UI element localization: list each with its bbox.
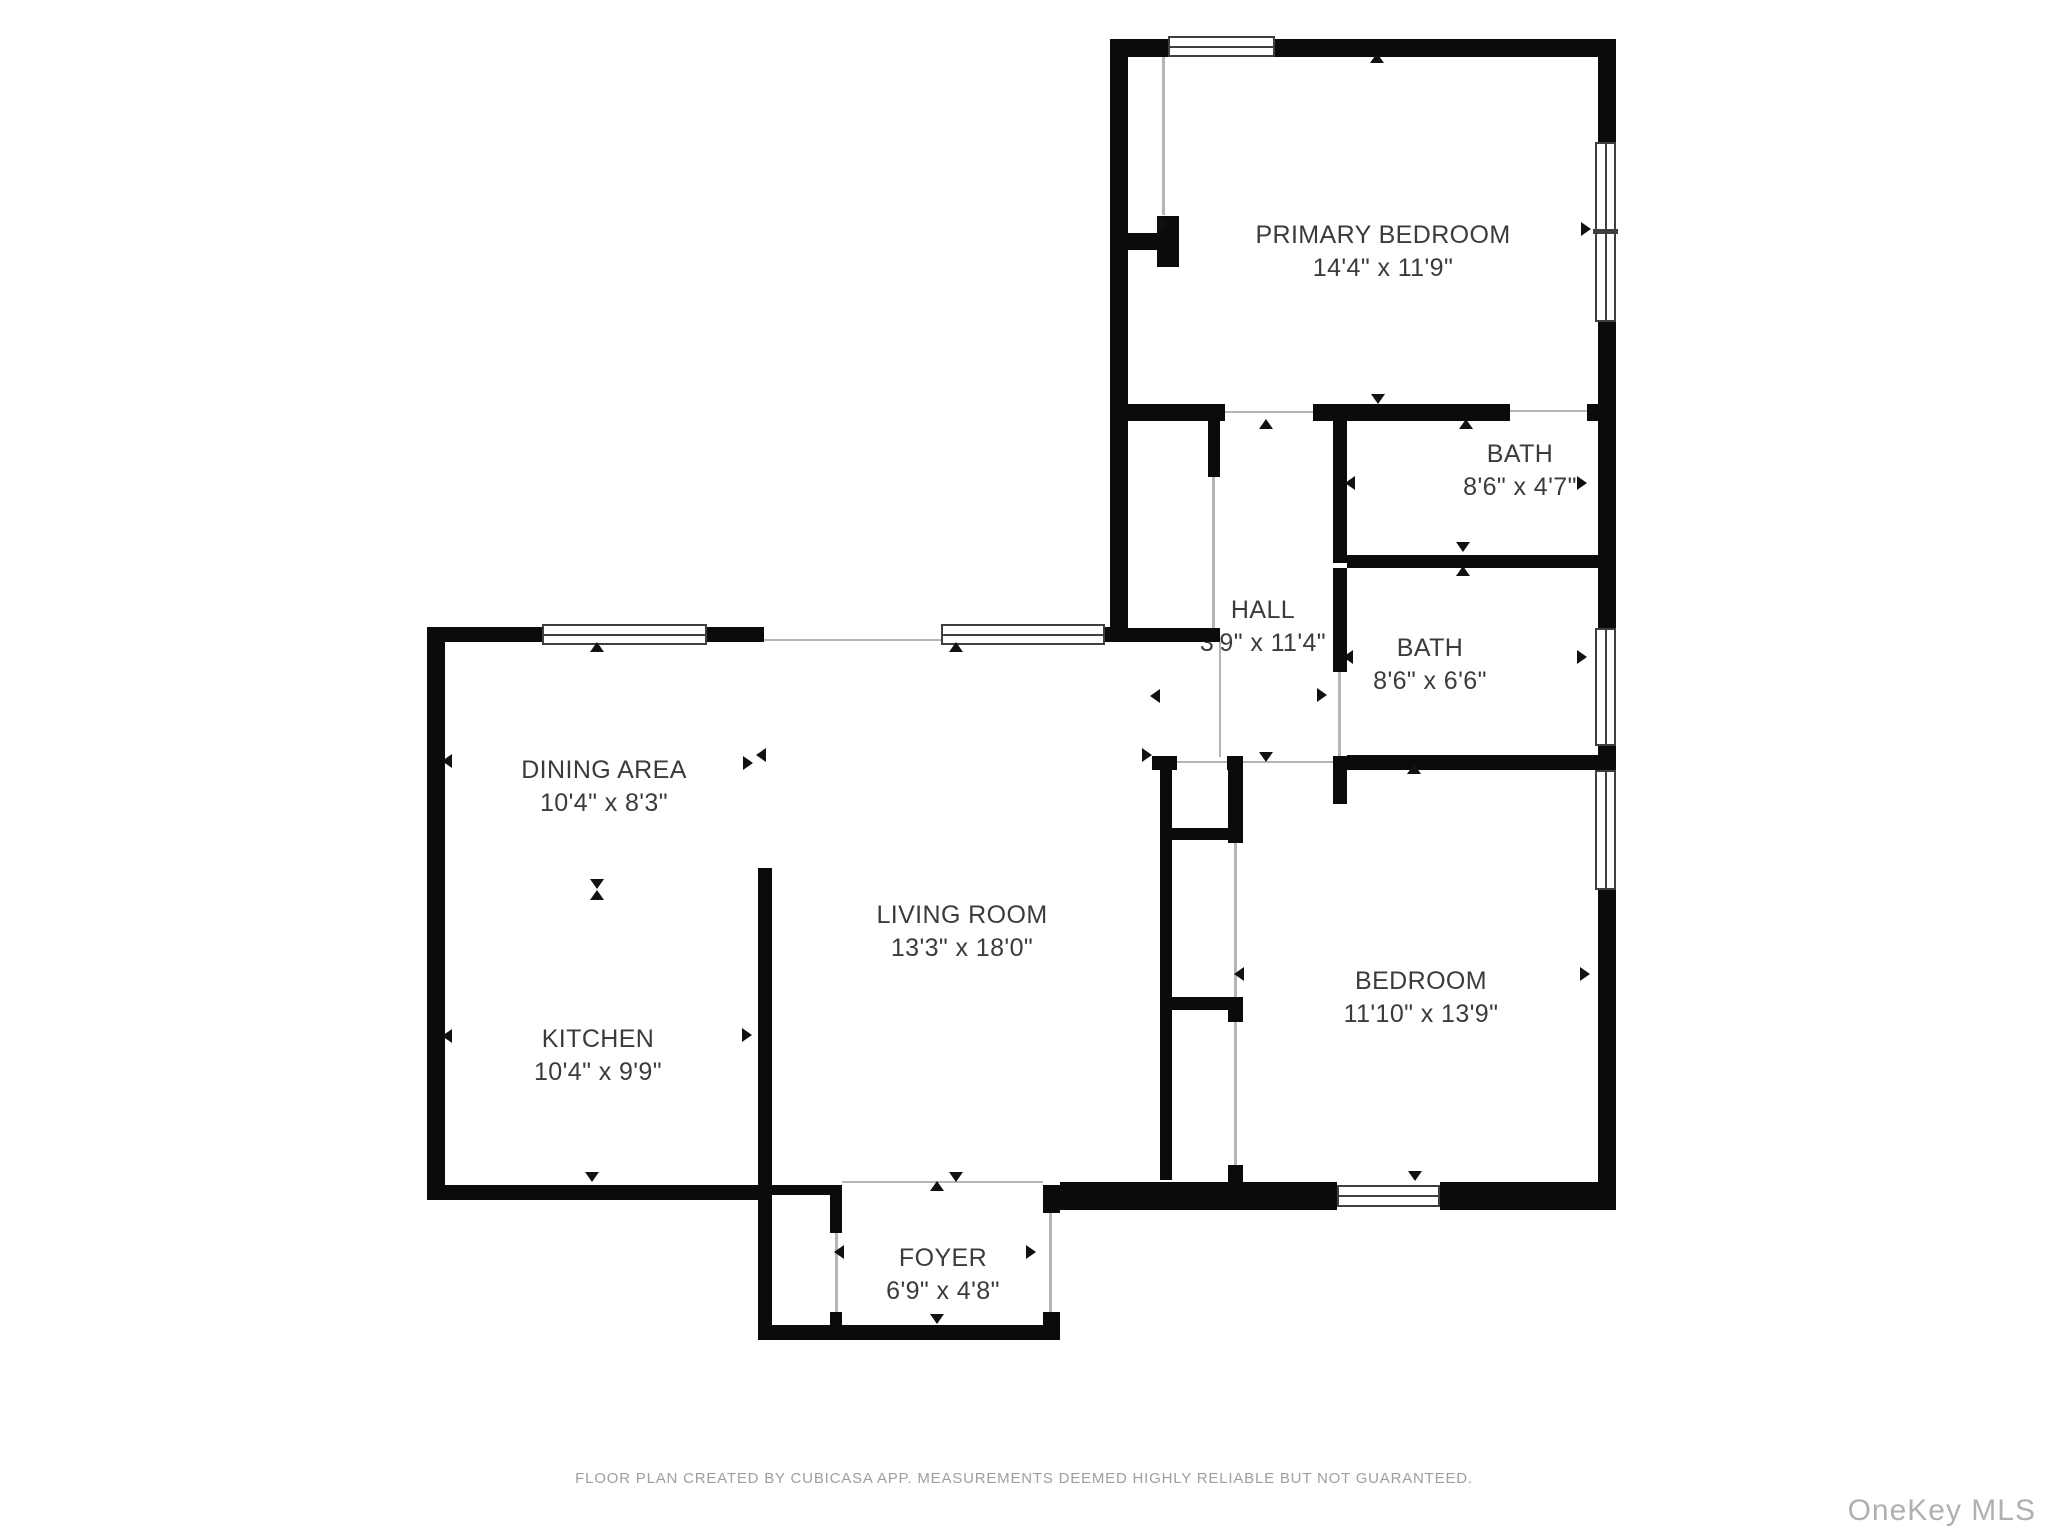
measure-arrow-icon — [1234, 967, 1244, 981]
room-name: BATH — [1463, 438, 1577, 471]
measure-arrow-icon — [585, 1172, 599, 1182]
measure-arrow-icon — [1142, 748, 1152, 762]
door-opening-line — [1510, 410, 1587, 412]
window-icon — [1595, 770, 1616, 890]
measure-arrow-icon — [1408, 1171, 1422, 1181]
wall-segment — [1227, 756, 1243, 770]
window-icon — [941, 624, 1105, 645]
room-dims: 14'4" x 11'9" — [1255, 252, 1510, 285]
mls-watermark: OneKey MLS — [1848, 1494, 2036, 1528]
measure-arrow-icon — [590, 879, 604, 889]
measure-arrow-icon — [1581, 222, 1591, 236]
wall-segment — [758, 1325, 1060, 1340]
measure-arrow-icon — [1456, 566, 1470, 576]
room-name: BEDROOM — [1344, 965, 1499, 998]
measure-arrow-icon — [834, 1245, 844, 1259]
measure-arrow-icon — [442, 1029, 452, 1043]
room-dims: 8'6" x 6'6" — [1373, 665, 1487, 698]
room-dims: 11'10" x 13'9" — [1344, 998, 1499, 1031]
window-icon — [1337, 1185, 1440, 1207]
wall-segment — [1598, 322, 1616, 628]
wall-segment — [1333, 756, 1347, 804]
wall-segment — [1228, 1165, 1243, 1183]
wall-segment — [427, 627, 542, 642]
room-name: PRIMARY BEDROOM — [1255, 219, 1510, 252]
door-opening-line — [1234, 1022, 1237, 1165]
measure-arrow-icon — [1343, 650, 1353, 664]
room-label-foyer: FOYER 6'9" x 4'8" — [886, 1242, 1000, 1308]
door-opening-line — [1162, 57, 1165, 215]
room-name: HALL — [1200, 594, 1326, 627]
door-opening-line — [1177, 761, 1227, 763]
wall-segment — [1598, 890, 1616, 1210]
measure-arrow-icon — [1370, 53, 1384, 63]
room-dims: 8'6" x 4'7" — [1463, 471, 1577, 504]
floor-plan-canvas: PRIMARY BEDROOM 14'4" x 11'9" BATH 8'6" … — [0, 0, 2048, 1536]
room-label-hall: HALL 3'9" x 11'4" — [1200, 594, 1326, 660]
measure-arrow-icon — [949, 1172, 963, 1182]
measure-arrow-icon — [1577, 476, 1587, 490]
wall-segment — [1128, 233, 1160, 250]
wall-segment — [1208, 412, 1220, 477]
wall-segment — [1275, 39, 1616, 57]
wall-segment — [1440, 1182, 1616, 1210]
wall-segment — [1347, 555, 1598, 568]
measure-arrow-icon — [742, 1028, 752, 1042]
wall-segment — [1152, 756, 1177, 770]
window-icon — [542, 624, 707, 645]
wall-segment — [1110, 39, 1168, 57]
wall-segment — [1043, 1185, 1060, 1213]
room-label-dining-area: DINING AREA 10'4" x 8'3" — [521, 754, 687, 820]
measure-arrow-icon — [1345, 476, 1355, 490]
wall-segment — [1172, 997, 1243, 1010]
wall-segment — [830, 1312, 842, 1325]
wall-segment — [1598, 746, 1616, 770]
wall-segment — [1172, 828, 1235, 840]
measure-arrow-icon — [1580, 967, 1590, 981]
measure-arrow-icon — [756, 748, 766, 762]
measure-arrow-icon — [590, 890, 604, 900]
measure-arrow-icon — [1259, 752, 1273, 762]
measure-arrow-icon — [1407, 764, 1421, 774]
measure-arrow-icon — [1150, 689, 1160, 703]
measure-arrow-icon — [1371, 394, 1385, 404]
measure-arrow-icon — [1158, 217, 1168, 231]
wall-segment — [758, 868, 772, 1185]
wall-segment — [1598, 39, 1616, 142]
room-label-bath-1: BATH 8'6" x 4'7" — [1463, 438, 1577, 504]
room-label-bedroom: BEDROOM 11'10" x 13'9" — [1344, 965, 1499, 1031]
door-opening-line — [1243, 761, 1333, 763]
room-label-kitchen: KITCHEN 10'4" x 9'9" — [534, 1023, 662, 1089]
wall-segment — [1105, 627, 1128, 642]
room-dims: 13'3" x 18'0" — [876, 932, 1047, 965]
room-name: DINING AREA — [521, 754, 687, 787]
window-icon — [1595, 628, 1616, 746]
door-opening-line — [1049, 1213, 1052, 1312]
measure-arrow-icon — [1317, 688, 1327, 702]
floor-plan-disclaimer: FLOOR PLAN CREATED BY CUBICASA APP. MEAS… — [0, 1470, 2048, 1487]
measure-arrow-icon — [1026, 1245, 1036, 1259]
measure-arrow-icon — [590, 642, 604, 652]
room-name: BATH — [1373, 632, 1487, 665]
measure-arrow-icon — [743, 756, 753, 770]
wall-segment — [1160, 762, 1172, 1180]
measure-arrow-icon — [930, 1181, 944, 1191]
room-name: FOYER — [886, 1242, 1000, 1275]
wall-segment — [770, 1185, 842, 1195]
wall-segment — [1043, 1312, 1060, 1340]
measure-arrow-icon — [1456, 542, 1470, 552]
room-name: LIVING ROOM — [876, 899, 1047, 932]
wall-segment — [427, 627, 445, 1200]
room-dims: 10'4" x 8'3" — [521, 787, 687, 820]
measure-arrow-icon — [930, 1314, 944, 1324]
door-opening-line — [1225, 411, 1313, 413]
wall-segment — [830, 1195, 842, 1233]
wall-segment — [1587, 404, 1616, 421]
door-opening-line — [1338, 672, 1341, 757]
room-dims: 10'4" x 9'9" — [534, 1056, 662, 1089]
room-label-bath-2: BATH 8'6" x 6'6" — [1373, 632, 1487, 698]
wall-segment — [1347, 755, 1598, 770]
measure-arrow-icon — [1459, 419, 1473, 429]
measure-arrow-icon — [1577, 650, 1587, 664]
room-dims: 6'9" x 4'8" — [886, 1275, 1000, 1308]
room-name: KITCHEN — [534, 1023, 662, 1056]
wall-segment — [758, 1185, 772, 1340]
window-sash-divider — [1593, 229, 1618, 234]
window-icon — [1168, 36, 1275, 57]
room-label-living-room: LIVING ROOM 13'3" x 18'0" — [876, 899, 1047, 965]
door-opening-line — [764, 639, 941, 641]
room-label-primary-bedroom: PRIMARY BEDROOM 14'4" x 11'9" — [1255, 219, 1510, 285]
measure-arrow-icon — [1259, 419, 1273, 429]
measure-arrow-icon — [949, 642, 963, 652]
measure-arrow-icon — [442, 754, 452, 768]
wall-segment — [1110, 39, 1128, 642]
wall-segment — [427, 1185, 772, 1200]
wall-segment — [707, 627, 764, 642]
wall-segment — [1060, 1182, 1337, 1210]
